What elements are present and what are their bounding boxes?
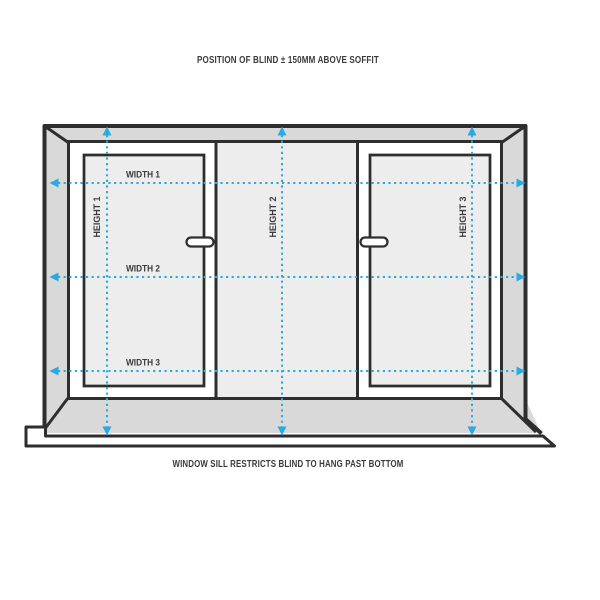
right-casement-handle-icon <box>361 238 388 247</box>
height-1-label: HEIGHT 1 <box>92 196 103 238</box>
bottom-caption: WINDOW SILL RESTRICTS BLIND TO HANG PAST… <box>173 459 404 470</box>
window-measurement-diagram: WIDTH 1 WIDTH 2 WIDTH 3 HEIGHT 1 HEIGHT … <box>0 0 600 600</box>
height-2-label: HEIGHT 2 <box>268 197 279 238</box>
center-fixed-pane <box>217 143 357 397</box>
height-3-label: HEIGHT 3 <box>458 197 469 238</box>
top-caption: POSITION OF BLIND ± 150MM ABOVE SOFFIT <box>197 55 379 66</box>
width-2-label: WIDTH 2 <box>126 264 160 275</box>
left-casement-handle-icon <box>187 238 214 247</box>
width-1-label: WIDTH 1 <box>126 170 161 181</box>
diagram-canvas: WIDTH 1 WIDTH 2 WIDTH 3 HEIGHT 1 HEIGHT … <box>0 0 600 600</box>
width-3-label: WIDTH 3 <box>126 358 160 369</box>
